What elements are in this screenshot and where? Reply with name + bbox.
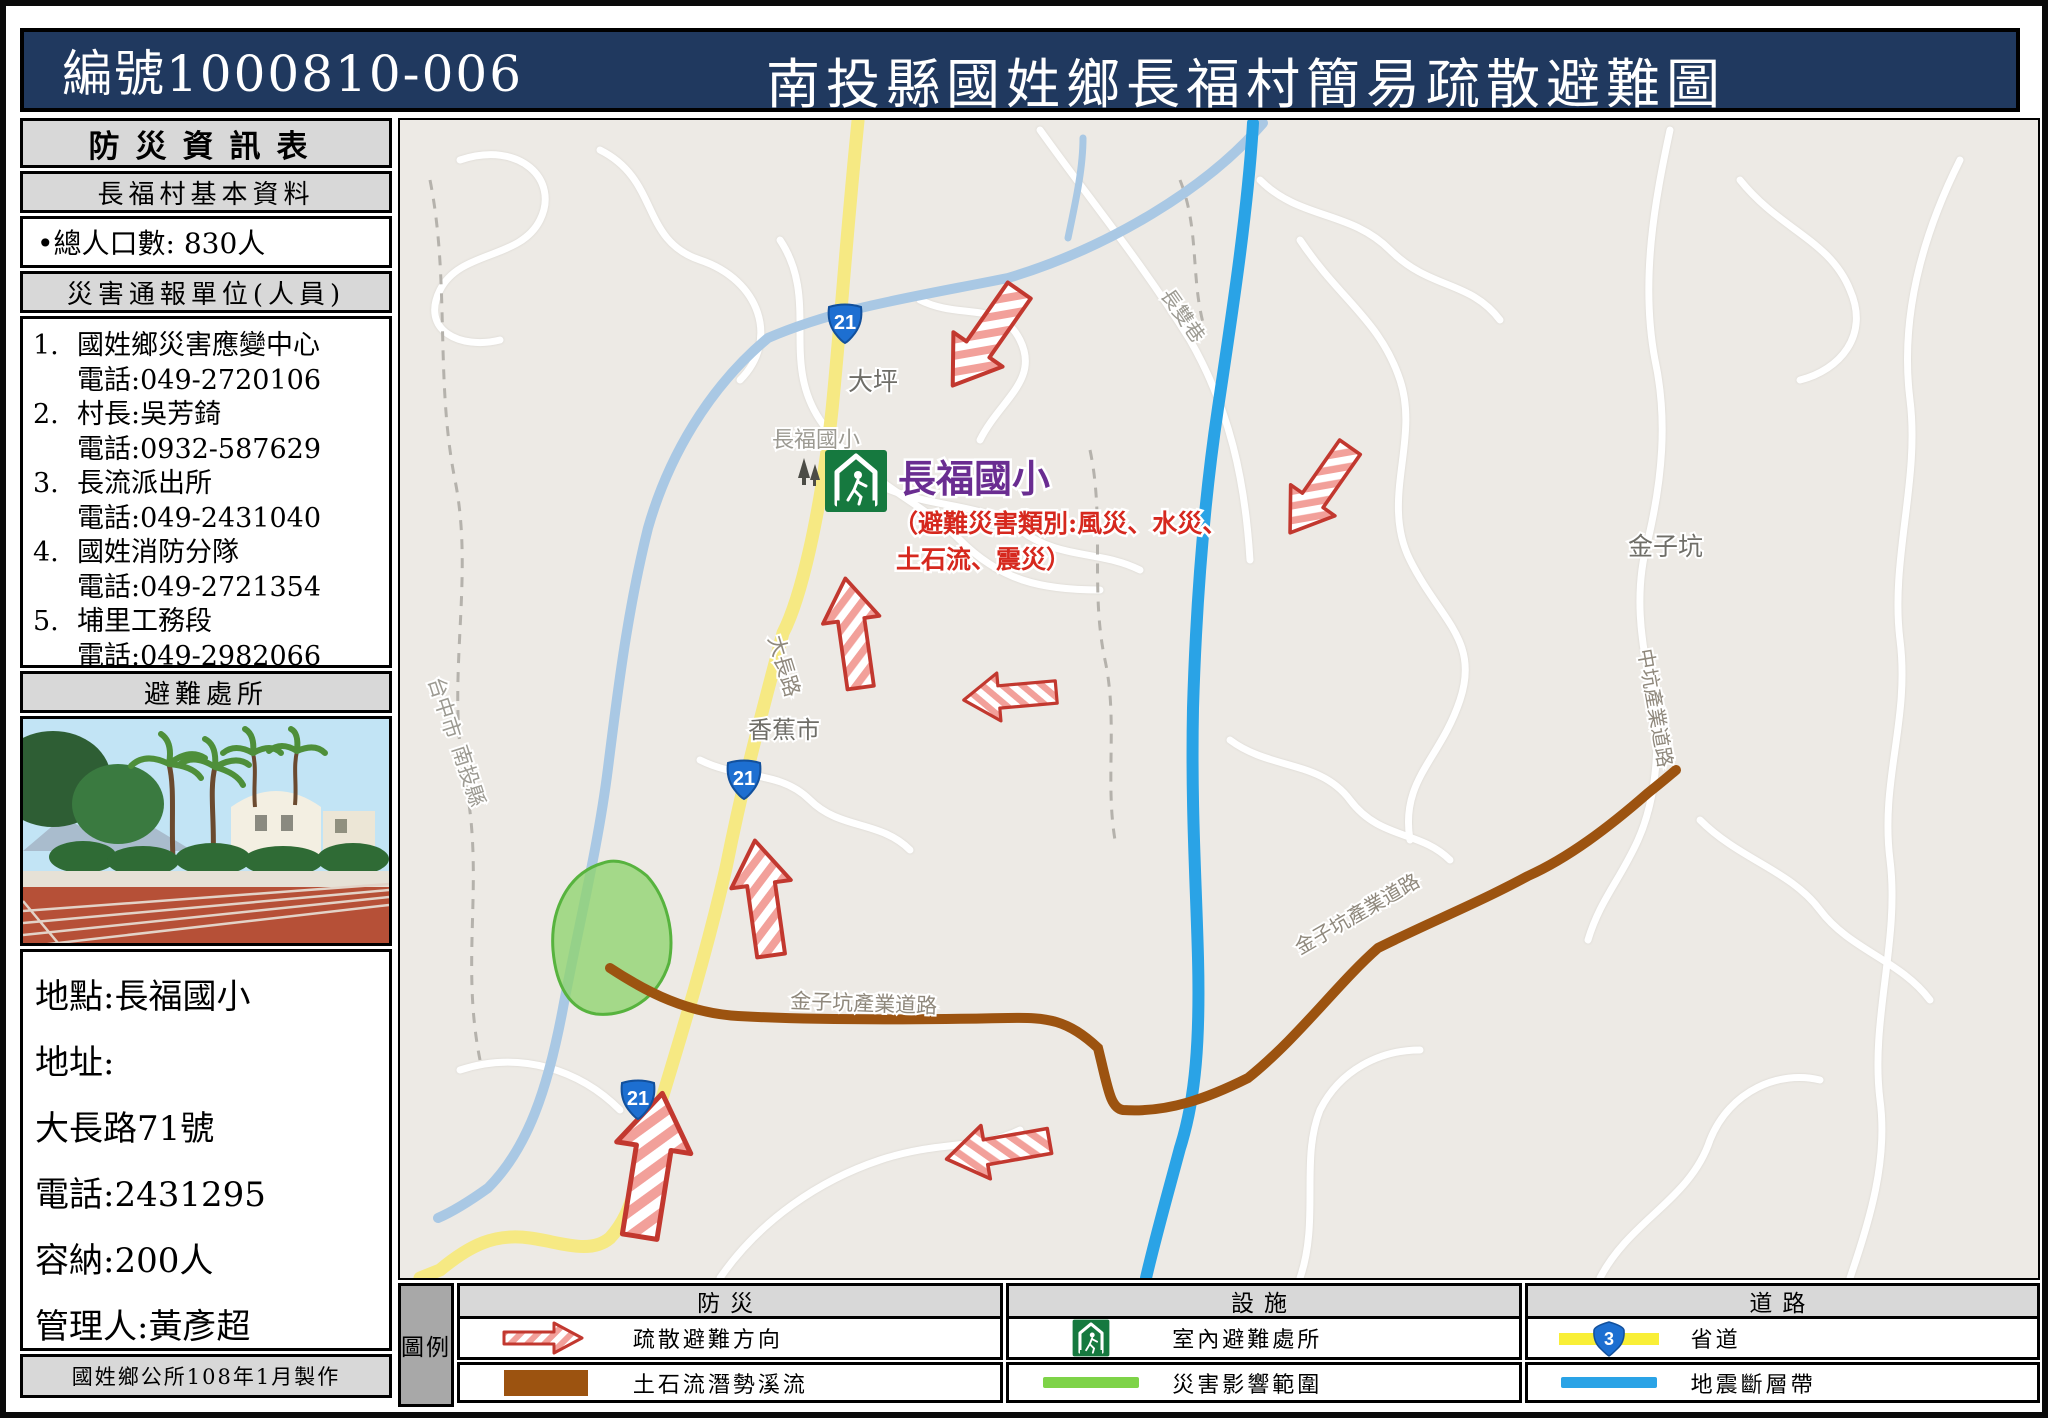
legend-label: 室內避難處所	[1172, 1322, 1518, 1354]
place-label-daping: 大坪	[848, 368, 898, 396]
report-unit: 4. 國姓消防分隊	[33, 536, 385, 571]
unit-number: 5.	[33, 605, 77, 640]
legend-column-roads: 道路 3 省道 地震斷層帶	[1525, 1283, 2040, 1407]
report-units-list: 1. 國姓鄉災害應變中心 電話:049-2720106 2. 村長:吳芳錡 電話…	[20, 316, 392, 668]
basic-info-header: 長福村基本資料	[20, 171, 392, 213]
legend-label: 地震斷層帶	[1691, 1367, 2037, 1399]
legend-label: 省道	[1691, 1322, 2037, 1354]
impact-area-line-icon	[1009, 1377, 1172, 1388]
evacuation-map: 21 21 21 長雙巷 大坪 長福國小 台中市 南投縣 大長路 香蕉市 金子坑…	[398, 118, 2040, 1280]
legend-row-fault-zone: 地震斷層帶	[1525, 1362, 2040, 1403]
unit-number: 2.	[33, 398, 77, 433]
legend-column-header: 防災	[457, 1283, 1003, 1319]
disaster-info-panel: 防災資訊表 長福村基本資料 •總人口數: 830人 災害通報單位(人員) 1. …	[20, 118, 392, 1410]
shelter-photo	[20, 716, 392, 946]
unit-name: 長流派出所	[77, 467, 212, 502]
shelter-name-label: 長福國小	[898, 456, 1050, 501]
place-label-banana-market: 香蕉市	[748, 717, 820, 744]
unit-phone: 電話:049-2982066	[33, 640, 385, 675]
panel-title: 防災資訊表	[20, 118, 392, 168]
legend-column-disaster-prevention: 防災 疏散避難方向 土石流潛勢溪流	[457, 1283, 1003, 1407]
place-label-changfu-elementary: 長福國小	[772, 427, 860, 452]
evacuation-map-page: 編號1000810-006 南投縣國姓鄉長福村簡易疏散避難圖 防災資訊表 長福村…	[0, 0, 2048, 1418]
report-unit: 2. 村長:吳芳錡	[33, 398, 385, 433]
provincial-route-icon: 3	[1528, 1318, 1691, 1358]
report-unit: 3. 長流派出所	[33, 467, 385, 502]
report-unit: 5. 埔里工務段	[33, 605, 385, 640]
indoor-shelter-icon	[1009, 1319, 1172, 1357]
evacuation-arrow-icon	[460, 1320, 633, 1356]
route-shield-number: 21	[834, 312, 856, 334]
unit-number: 1.	[33, 329, 77, 364]
document-number: 編號1000810-006	[62, 34, 523, 106]
unit-phone: 電話:049-2431040	[33, 502, 385, 537]
map-canvas: 21 21 21 長雙巷 大坪 長福國小 台中市 南投縣 大長路 香蕉市 金子坑…	[400, 120, 2038, 1278]
legend-row-indoor-shelter: 室內避難處所	[1006, 1319, 1521, 1360]
title-bar: 編號1000810-006 南投縣國姓鄉長福村簡易疏散避難圖	[20, 28, 2020, 112]
shelter-header: 避難處所	[20, 671, 392, 713]
shelter-phone: 電話:2431295	[35, 1162, 389, 1228]
report-units-header: 災害通報單位(人員)	[20, 271, 392, 313]
route-shield-number: 21	[733, 768, 755, 790]
legend-key-label: 圖例	[398, 1283, 454, 1407]
hazard-note-line1: （避難災害類別:風災、水災、	[893, 509, 1227, 538]
place-label-jinzikeng: 金子坑	[1628, 533, 1703, 561]
shelter-info-block: 地點:長福國小 地址: 大長路71號 電話:2431295 容納:200人 管理…	[20, 949, 392, 1351]
page-title: 南投縣國姓鄉長福村簡易疏散避難圖	[766, 40, 1726, 119]
legend-row-impact-area: 災害影響範圍	[1006, 1362, 1521, 1403]
shelter-address: 大長路71號	[35, 1096, 389, 1162]
legend-row-evacuation-direction: 疏散避難方向	[457, 1319, 1003, 1360]
legend-column-header: 設施	[1006, 1283, 1521, 1319]
unit-number: 4.	[33, 536, 77, 571]
shelter-location: 地點:長福國小	[35, 964, 389, 1030]
legend: 圖例 防災 疏散避難方向	[398, 1283, 2040, 1407]
debris-flow-swatch-icon	[460, 1370, 633, 1396]
legend-column-facilities: 設施 室內避難處所 災害影響範圍	[1006, 1283, 1521, 1407]
shelter-address-label: 地址:	[35, 1030, 389, 1096]
indoor-shelter-marker	[825, 450, 887, 512]
route-shield-number: 3	[1604, 1329, 1614, 1349]
legend-row-debris-flow: 土石流潛勢溪流	[457, 1362, 1003, 1403]
legend-label: 土石流潛勢溪流	[633, 1367, 1000, 1399]
unit-phone: 電話:049-2720106	[33, 364, 385, 399]
legend-row-provincial-route: 3 省道	[1525, 1319, 2040, 1360]
unit-phone: 電話:0932-587629	[33, 433, 385, 468]
hazard-note-line2: 土石流、震災）	[896, 545, 1071, 574]
population-row: •總人口數: 830人	[20, 216, 392, 268]
made-by-footer: 國姓鄉公所108年1月製作	[20, 1354, 392, 1398]
report-unit: 1. 國姓鄉災害應變中心	[33, 329, 385, 364]
fault-line-icon	[1528, 1377, 1691, 1388]
legend-column-header: 道路	[1525, 1283, 2040, 1319]
unit-name: 國姓消防分隊	[77, 536, 239, 571]
school-photo-illustration	[23, 719, 389, 946]
legend-label: 疏散避難方向	[633, 1322, 1000, 1354]
unit-name: 埔里工務段	[77, 605, 212, 640]
unit-name: 國姓鄉災害應變中心	[77, 329, 320, 364]
route-shield-number: 21	[627, 1088, 649, 1110]
shelter-manager: 管理人:黃彥超	[35, 1294, 389, 1360]
unit-phone: 電話:049-2721354	[33, 571, 385, 606]
unit-number: 3.	[33, 467, 77, 502]
shelter-capacity: 容納:200人	[35, 1228, 389, 1294]
unit-name: 村長:吳芳錡	[77, 398, 221, 433]
legend-label: 災害影響範圍	[1172, 1367, 1518, 1399]
